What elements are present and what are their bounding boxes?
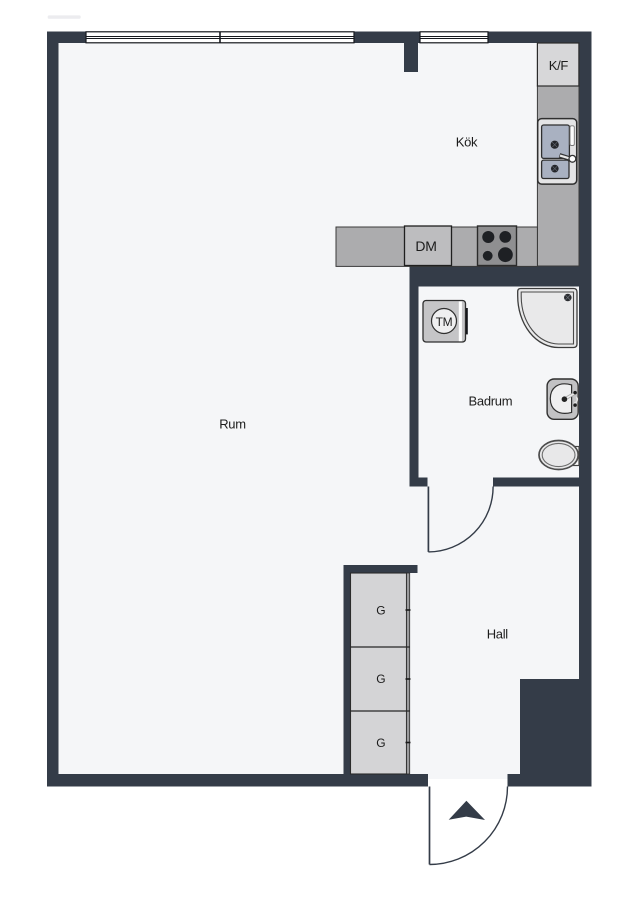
svg-text:Hall: Hall xyxy=(487,626,509,641)
svg-text:Badrum: Badrum xyxy=(469,394,513,409)
svg-text:DM: DM xyxy=(415,238,436,254)
svg-text:G: G xyxy=(376,604,385,618)
svg-text:K/F: K/F xyxy=(549,58,569,73)
svg-text:Kök: Kök xyxy=(456,135,478,150)
svg-text:TM: TM xyxy=(436,315,453,329)
svg-text:Rum: Rum xyxy=(219,417,246,432)
svg-text:G: G xyxy=(376,672,385,686)
svg-text:G: G xyxy=(376,736,385,750)
